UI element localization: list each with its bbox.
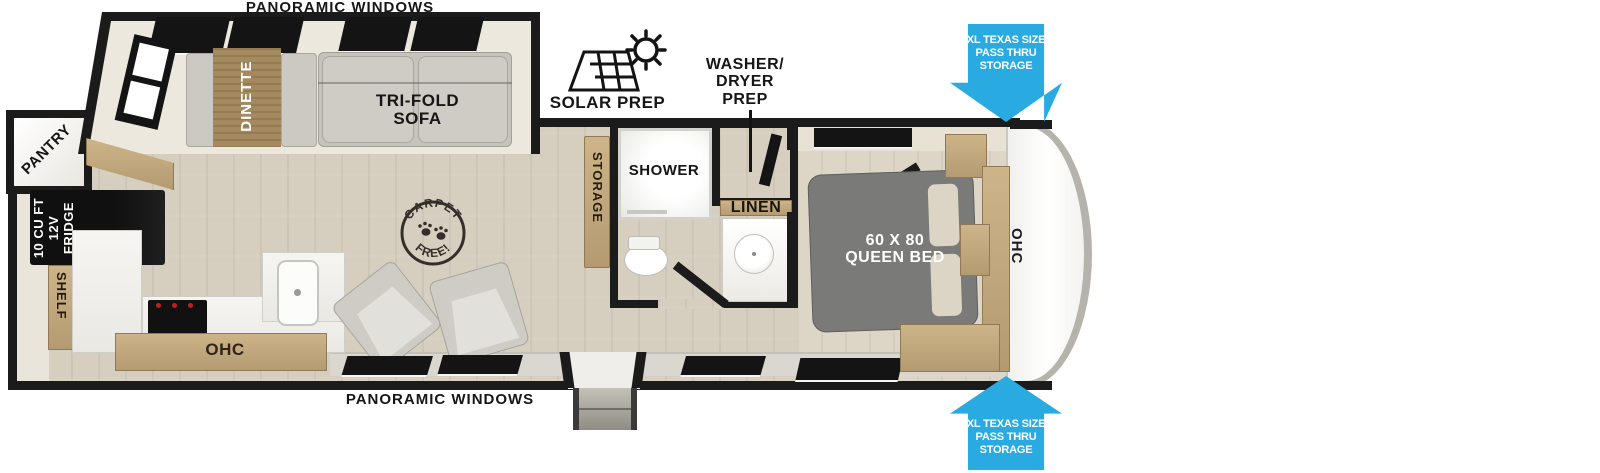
panoramic-windows-top-label: PANORAMIC WINDOWS <box>210 0 470 16</box>
entry-steps <box>573 388 637 430</box>
bedroom-wardrobe-bottom <box>900 324 1000 372</box>
shower-label: SHOWER <box>614 163 714 179</box>
bedroom-nightstand-top <box>945 134 987 178</box>
dinette-label: DINETTE <box>239 46 255 146</box>
bath-vanity <box>722 218 792 302</box>
bedroom-bottom-window <box>795 358 903 382</box>
pass-thru-bottom-label: XL TEXAS SIZE PASS THRU STORAGE <box>950 418 1062 457</box>
bedroom-ohc-label: OHC <box>1008 228 1024 264</box>
stamp-text-bottom: FREE! <box>413 240 454 260</box>
toilet <box>624 234 670 278</box>
solar-prep-label: SOLAR PREP <box>540 94 675 112</box>
kitchen-sink <box>277 260 319 326</box>
paw-icon <box>418 222 448 240</box>
entry-door-sill <box>568 352 640 389</box>
pass-thru-arrow-bottom: XL TEXAS SIZE PASS THRU STORAGE <box>950 376 1062 470</box>
storage-label: STORAGE <box>590 152 604 223</box>
slide-window-3 <box>338 17 412 53</box>
slide-window-4 <box>410 17 484 53</box>
dinette-bench-right <box>281 53 317 147</box>
pass-thru-arrow-top: XL TEXAS SIZE PASS THRU STORAGE <box>950 24 1062 122</box>
hall-bottom-window <box>680 356 766 377</box>
trifold-sofa-label: TRI-FOLD SOFA <box>355 92 480 129</box>
bath-sink <box>734 234 774 274</box>
svg-text:FREE!: FREE! <box>413 240 454 260</box>
bedroom-wall-lower <box>787 212 796 308</box>
queen-bed-label: 60 X 80 QUEEN BED <box>820 232 970 267</box>
bedroom-wall-upper <box>787 128 796 150</box>
stamp-text-top: CARPET <box>401 196 465 222</box>
pass-thru-top-label: XL TEXAS SIZE PASS THRU STORAGE <box>950 34 1062 73</box>
svg-text:CARPET: CARPET <box>401 196 465 222</box>
bedroom-dresser <box>960 224 990 276</box>
solar-panel-icon <box>566 28 672 94</box>
panoramic-windows-bottom-label: PANORAMIC WINDOWS <box>310 392 570 408</box>
bottom-window-2 <box>437 355 523 376</box>
dinette-bench-left <box>186 53 216 147</box>
floorplan-canvas: PANTRY DINETTE TRI-FOLD SOFA 10 CU FT 12… <box>0 0 1600 473</box>
cap-top-wall <box>1010 120 1052 129</box>
bedroom-top-window <box>814 128 912 149</box>
carpet-free-stamp: CARPET FREE! <box>396 196 470 270</box>
washer-dryer-prep-label: WASHER/ DRYER PREP <box>690 56 800 108</box>
kitchen-ohc-label: OHC <box>195 341 255 359</box>
linen-label: LINEN <box>716 199 796 216</box>
washer-dryer-leader-line <box>749 110 752 172</box>
bottom-window-1 <box>341 356 433 377</box>
shelf-label: SHELF <box>54 272 68 320</box>
